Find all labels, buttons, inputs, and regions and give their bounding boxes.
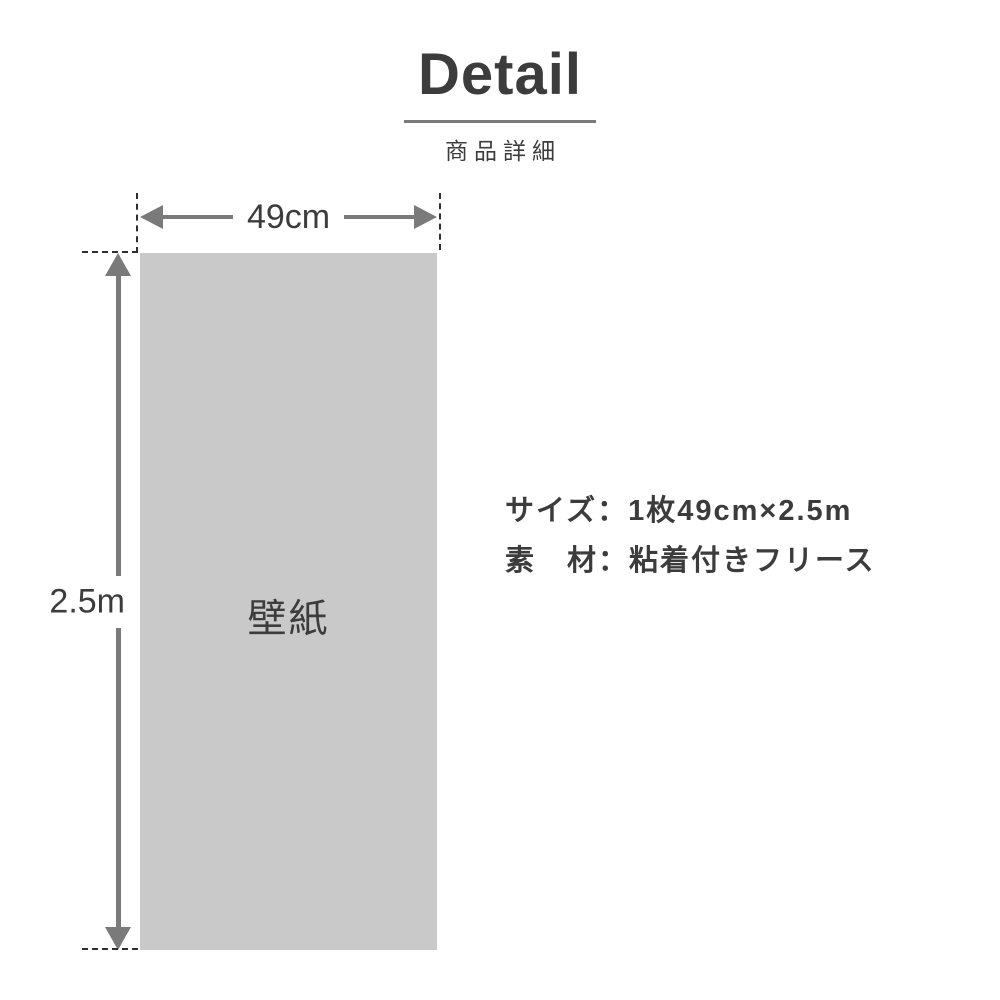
header: Detail 商品詳細 bbox=[0, 46, 1000, 166]
arrow-left-icon bbox=[140, 205, 163, 229]
dashed-guide-bottom bbox=[82, 948, 138, 950]
page-subtitle: 商品詳細 bbox=[0, 132, 1000, 166]
dimension-line bbox=[116, 628, 121, 928]
dimension-line bbox=[344, 215, 414, 219]
title-underline bbox=[404, 120, 596, 123]
dashed-guide-left bbox=[136, 193, 138, 253]
product-specs: サイズ：1枚49cm×2.5m 素 材：粘着付きフリース bbox=[505, 486, 876, 586]
dimension-label-gap: 2.5m bbox=[96, 576, 140, 628]
arrow-up-icon bbox=[105, 253, 131, 276]
dashed-guide-right bbox=[439, 193, 441, 250]
dimension-line bbox=[116, 276, 121, 576]
height-dimension: 2.5m bbox=[96, 253, 140, 950]
width-dimension-label: 49cm bbox=[233, 198, 344, 237]
spec-size: サイズ：1枚49cm×2.5m bbox=[505, 486, 876, 536]
width-dimension: 49cm bbox=[140, 195, 437, 239]
dimension-line bbox=[163, 215, 233, 219]
page-title: Detail bbox=[0, 46, 1000, 104]
arrow-down-icon bbox=[105, 927, 131, 950]
height-dimension-label: 2.5m bbox=[49, 582, 125, 621]
product-detail-page: Detail 商品詳細 壁紙 49cm 2.5m サイズ：1枚49cm×2.5m… bbox=[0, 0, 1000, 1000]
arrow-right-icon bbox=[414, 205, 437, 229]
spec-material: 素 材：粘着付きフリース bbox=[505, 536, 876, 586]
wallpaper-panel-label: 壁紙 bbox=[247, 560, 329, 644]
dashed-guide-top bbox=[82, 251, 138, 253]
wallpaper-panel: 壁紙 bbox=[140, 253, 437, 950]
